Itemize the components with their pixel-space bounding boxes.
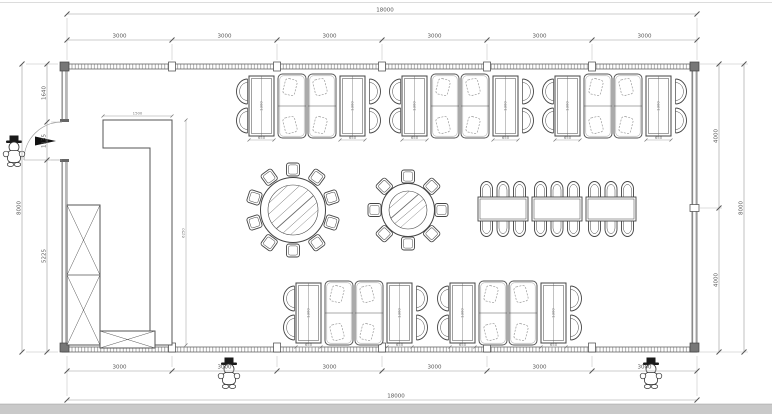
wall-column <box>589 343 596 352</box>
booth-group-top-3 <box>543 74 687 140</box>
dim-label: 3000 <box>323 34 337 40</box>
counter-width-dim: 1500 <box>133 111 143 116</box>
dim-label: 3000 <box>533 34 547 40</box>
wall-column <box>690 205 699 212</box>
mascot-figure-bottom-right <box>640 358 662 389</box>
booth-group-top-1 <box>237 74 381 140</box>
dim-label: 3000 <box>323 365 337 371</box>
dim-label: 8000 <box>17 201 23 215</box>
corner-column <box>60 62 69 71</box>
dim-label: 3000 <box>218 34 232 40</box>
booth-group-bottom-2 <box>438 281 582 347</box>
dim-label: 3000 <box>113 34 127 40</box>
round-table-small <box>368 170 448 250</box>
dim-label: 3000 <box>638 34 652 40</box>
wall-column <box>379 62 386 71</box>
dim-label: 3000 <box>428 34 442 40</box>
booth-group-bottom-1 <box>284 281 428 347</box>
wall-column <box>589 62 596 71</box>
wall-column <box>484 62 491 71</box>
table-section <box>478 197 528 221</box>
corner-column <box>690 62 699 71</box>
wall-left <box>62 64 67 352</box>
dim-label: 18000 <box>376 8 394 14</box>
wall-column <box>274 62 281 71</box>
floor-plan-canvas: 1300 650 1300 650 <box>0 0 772 414</box>
wall-column <box>169 62 176 71</box>
storage-cabinets <box>67 205 155 348</box>
dim-label: 3000 <box>428 365 442 371</box>
dim-label: 18000 <box>387 394 405 400</box>
wall-column <box>274 343 281 352</box>
dim-label: 8000 <box>739 201 745 215</box>
long-banquet-table <box>478 182 636 237</box>
counter-height-dim: 6250 <box>181 228 186 238</box>
dim-label: 3000 <box>113 365 127 371</box>
table-section <box>586 197 636 221</box>
dim-label: 3000 <box>218 365 232 371</box>
booth-group-top-2 <box>390 74 534 140</box>
service-counter: 1500 6250 <box>103 111 186 346</box>
mascot-figure-door <box>3 136 25 167</box>
counter-outline <box>103 120 172 345</box>
floor-plan-drawing: 1300 650 1300 650 <box>0 0 772 414</box>
mascot-figure-bottom-left <box>218 358 240 389</box>
door-jamb <box>60 159 69 162</box>
dim-label: 1135 <box>42 134 48 148</box>
corner-column <box>690 343 699 352</box>
door-jamb <box>60 119 69 122</box>
dim-label: 1640 <box>42 86 48 100</box>
door-opening <box>61 122 69 160</box>
dim-label: 5225 <box>42 249 48 263</box>
dim-label: 3000 <box>533 365 547 371</box>
dim-label: 4000 <box>714 129 720 143</box>
dim-label: 4000 <box>714 273 720 287</box>
round-table-large <box>246 163 339 257</box>
table-section <box>532 197 582 221</box>
dim-label: 3000 <box>638 365 652 371</box>
bottom-band <box>0 404 772 414</box>
